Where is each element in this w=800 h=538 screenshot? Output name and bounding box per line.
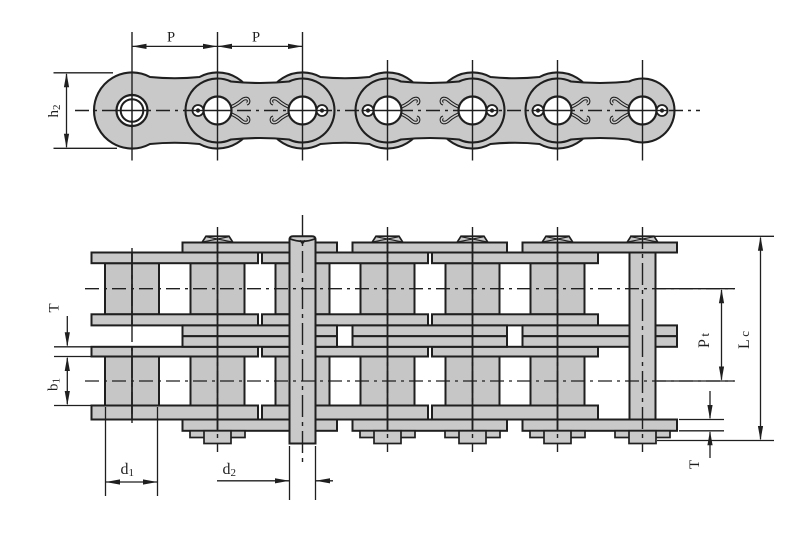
svg-text:T: T: [47, 303, 63, 312]
svg-text:P: P: [252, 30, 260, 46]
svg-text:T: T: [687, 460, 703, 469]
svg-text:Lc: Lc: [736, 331, 753, 349]
svg-text:P: P: [167, 30, 175, 46]
svg-text:Pt: Pt: [696, 333, 713, 348]
